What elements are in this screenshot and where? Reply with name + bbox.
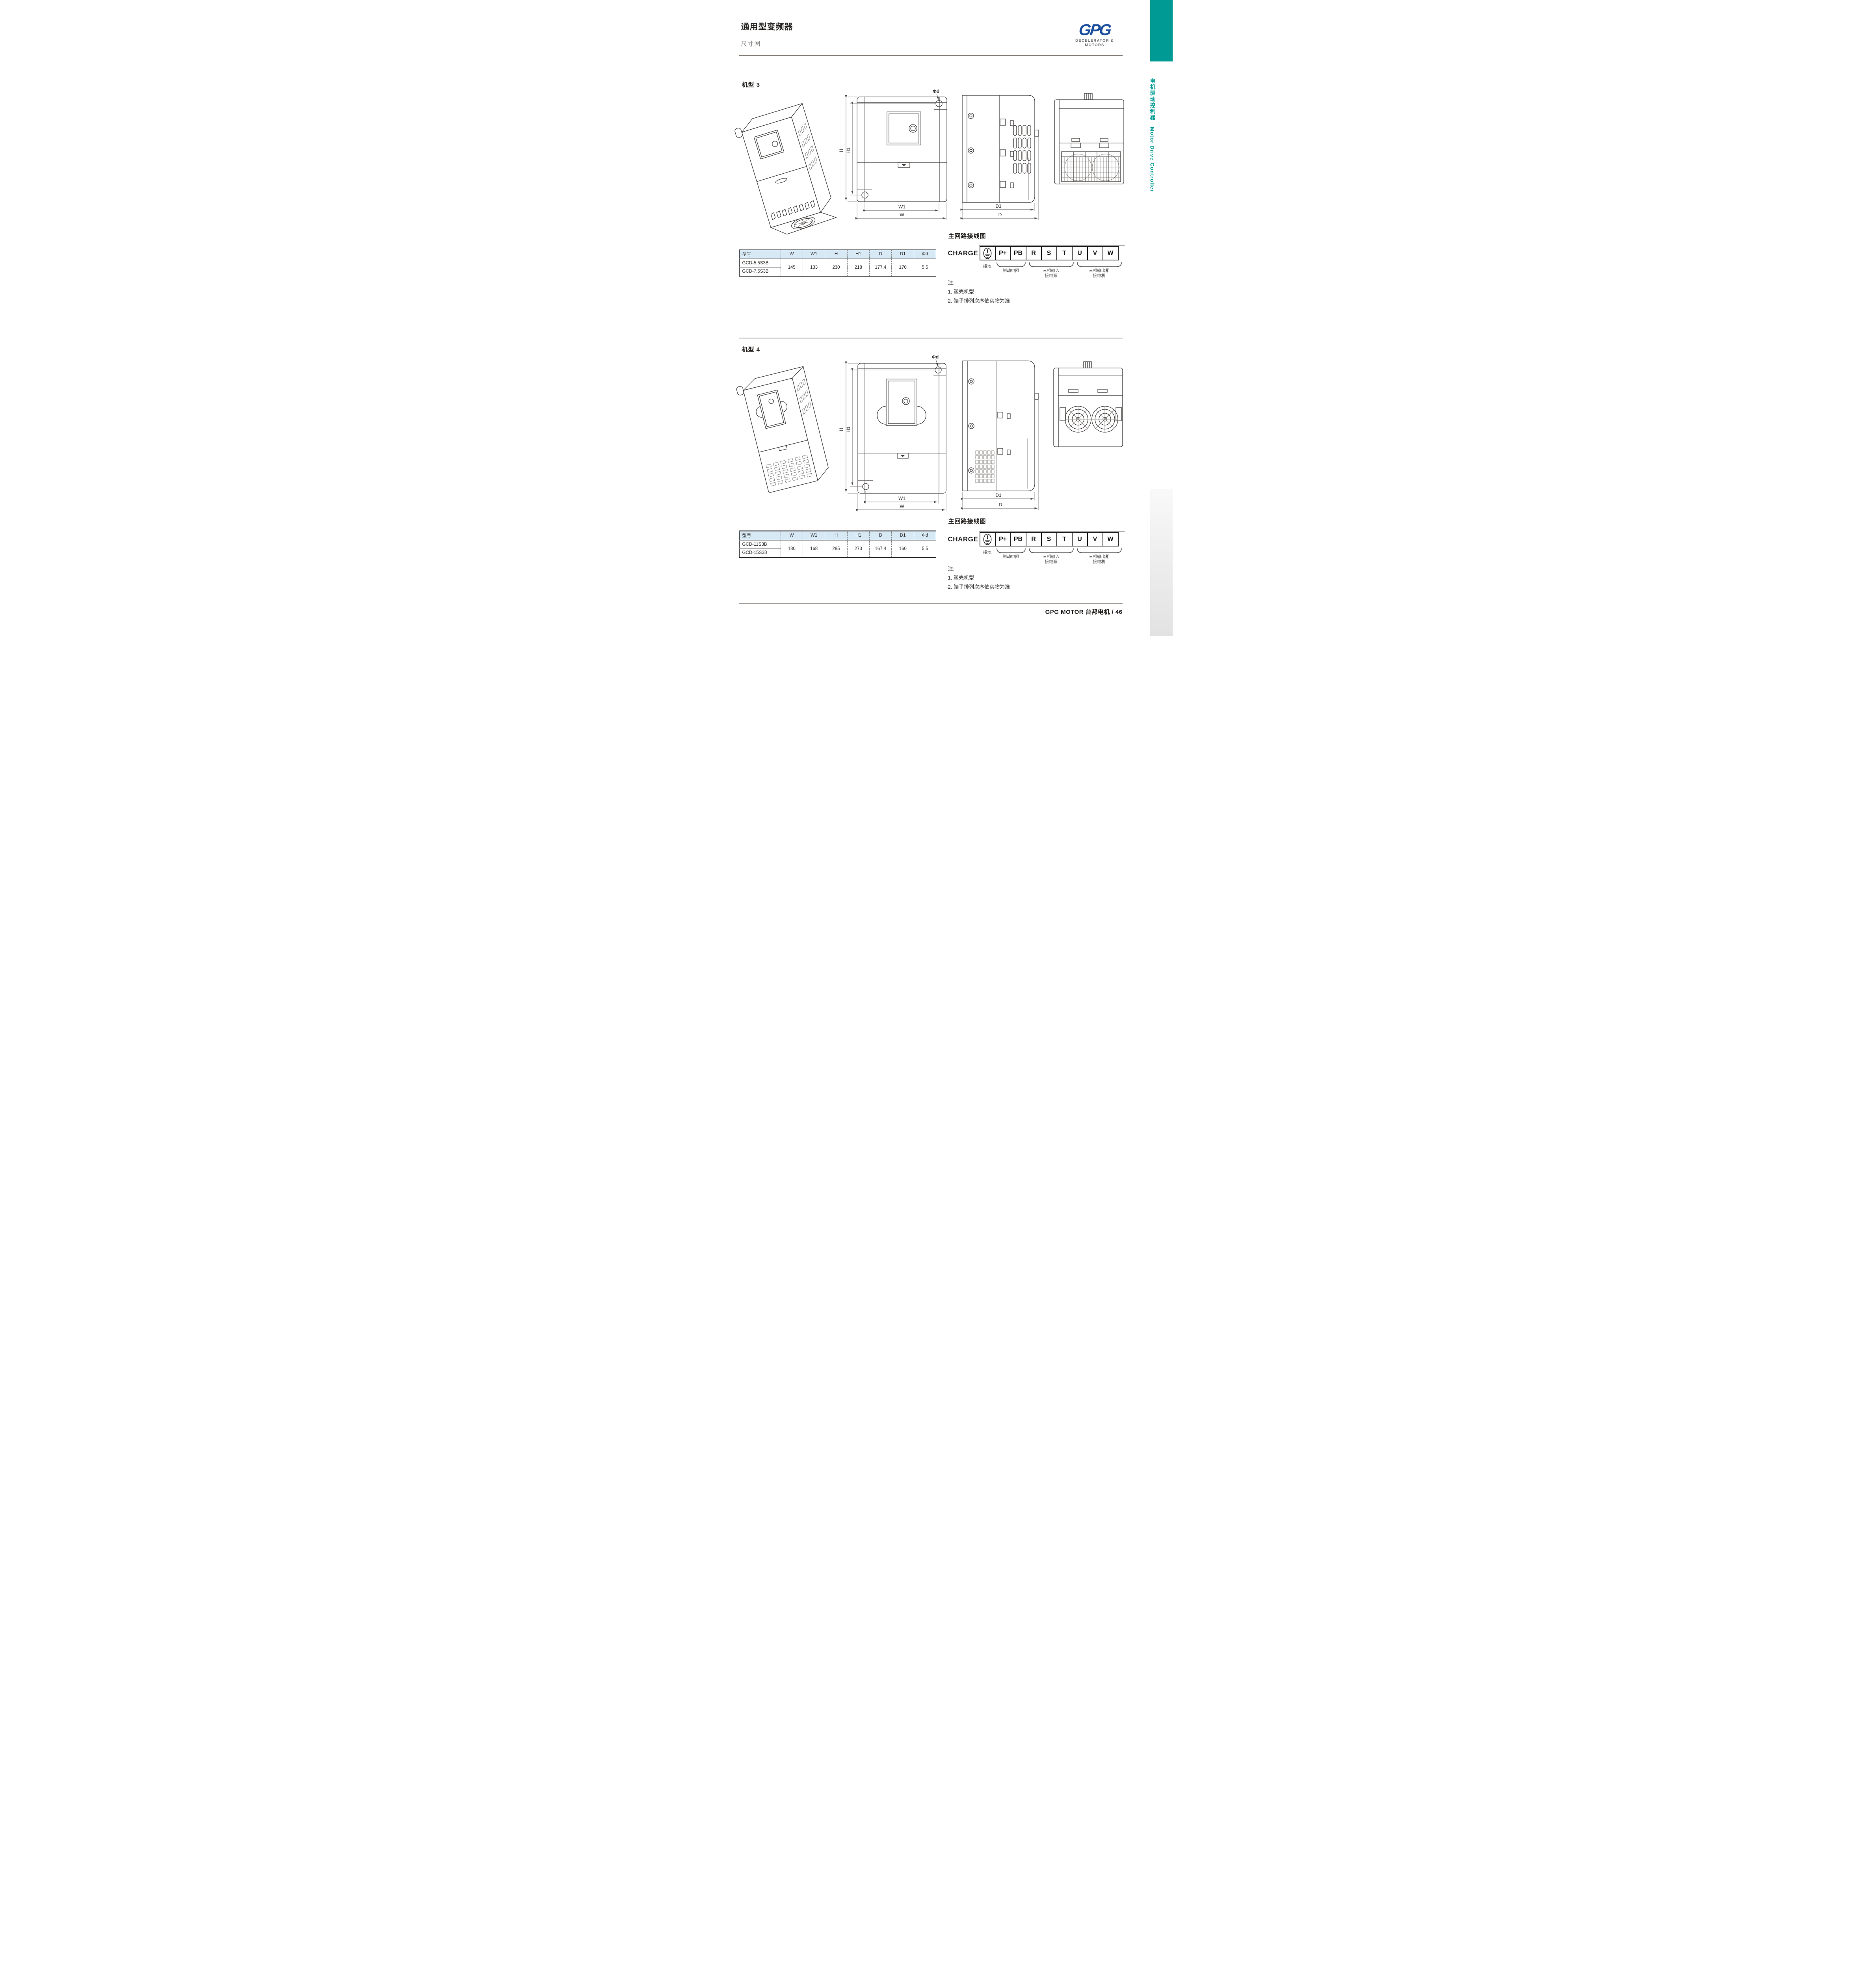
terminal-s: S bbox=[1041, 532, 1057, 546]
terminal-u: U bbox=[1072, 246, 1088, 260]
brace-icon bbox=[1028, 548, 1074, 554]
notes-block: 注: 1. 塑壳机型 2. 端子排列次序依实物为准 bbox=[948, 278, 1010, 305]
dim-label-h: H bbox=[839, 428, 844, 431]
ground-icon bbox=[983, 247, 992, 259]
footer-divider bbox=[739, 603, 1123, 604]
model-cell: GCD-15S3B bbox=[739, 549, 781, 558]
value-w1: 133 bbox=[803, 259, 825, 276]
page-title: 通用型变频器 bbox=[741, 20, 793, 32]
col-header-h: H bbox=[825, 250, 847, 259]
col-header-d1: D1 bbox=[892, 531, 914, 540]
value-d: 167.4 bbox=[870, 540, 892, 558]
output-callout: 三相输出相 接电机 bbox=[1083, 554, 1116, 565]
company-logo: GPG DECELERATOR & MOTORS bbox=[1066, 22, 1123, 47]
sidebar-accent-block bbox=[1150, 0, 1173, 61]
col-header-h1: H1 bbox=[847, 531, 869, 540]
terminal-strip: P+ PB R S T U V W bbox=[980, 246, 1119, 260]
terminal-p-plus: P+ bbox=[995, 532, 1011, 546]
ground-callout: 接地 bbox=[980, 264, 995, 269]
col-header-h: H bbox=[825, 531, 847, 540]
value-h1: 218 bbox=[847, 259, 869, 276]
col-header-model: 型号 bbox=[739, 250, 781, 259]
dim-label-h1: H1 bbox=[846, 147, 851, 154]
dim-label-w: W bbox=[900, 212, 904, 217]
value-phid: 5.5 bbox=[914, 540, 936, 558]
table-row: GCD-5.5S3B 145 133 230 218 177.4 170 5.5 bbox=[739, 259, 936, 268]
terminal-w: W bbox=[1103, 532, 1119, 546]
col-header-w: W bbox=[781, 531, 803, 540]
type3-rear-view-drawing bbox=[1050, 93, 1129, 189]
mounting-ear bbox=[736, 386, 744, 396]
input-callout: 三相输入 接电源 bbox=[1036, 554, 1067, 565]
wiring-heading: 主回路接线图 bbox=[948, 517, 986, 525]
dim-label-w: W bbox=[900, 504, 904, 509]
page-subtitle: 尺寸图 bbox=[741, 39, 761, 48]
terminal-strip: P+ PB R S T U V W bbox=[980, 532, 1119, 546]
col-header-w1: W1 bbox=[803, 531, 825, 540]
value-d1: 170 bbox=[892, 259, 914, 276]
connector bbox=[1035, 393, 1038, 400]
dim-label-h1: H1 bbox=[846, 426, 851, 433]
model-cell: GCD-7.5S3B bbox=[739, 268, 781, 276]
col-header-h1: H1 bbox=[847, 250, 869, 259]
brake-callout: 制动电阻 bbox=[995, 268, 1027, 273]
type3-side-view-drawing: D1 D bbox=[951, 87, 1046, 221]
input-callout: 三相输入 接电源 bbox=[1036, 268, 1067, 279]
model-cell: GCD-11S3B bbox=[739, 540, 781, 549]
note-item: 1. 塑壳机型 bbox=[948, 287, 1010, 296]
type3-isometric-drawing bbox=[738, 91, 835, 243]
col-header-d1: D1 bbox=[892, 250, 914, 259]
dim-label-phid: Φd bbox=[932, 354, 939, 360]
terminal-p-plus: P+ bbox=[995, 246, 1011, 260]
terminal-v: V bbox=[1087, 532, 1103, 546]
notes-title: 注: bbox=[948, 564, 1010, 573]
terminal-t: T bbox=[1056, 532, 1073, 546]
dim-label-w1: W1 bbox=[898, 496, 905, 501]
notes-title: 注: bbox=[948, 278, 1010, 287]
terminal-ground bbox=[980, 532, 996, 546]
keypad bbox=[887, 112, 921, 145]
dim-label-d: D bbox=[998, 212, 1002, 217]
terminal-t: T bbox=[1056, 246, 1073, 260]
type3-front-view-drawing: H H1 Φd W1 W bbox=[840, 87, 954, 221]
table-header-row: 型号 W W1 H H1 D D1 Φd bbox=[739, 250, 936, 259]
brace-icon bbox=[1077, 548, 1122, 554]
sidebar-text-cn: 电机驱动控制器 bbox=[1149, 78, 1155, 121]
sidebar-text-en: Motor Drive Controller bbox=[1149, 127, 1155, 192]
section-divider bbox=[739, 338, 1123, 338]
col-header-d: D bbox=[870, 531, 892, 540]
header-divider bbox=[739, 55, 1123, 56]
sidebar-gray-strip bbox=[1150, 489, 1173, 636]
value-d: 177.4 bbox=[870, 259, 892, 276]
section-1-label: 机型 3 bbox=[742, 80, 760, 89]
value-h: 285 bbox=[825, 540, 847, 558]
logo-tagline: DECELERATOR & MOTORS bbox=[1066, 39, 1123, 47]
brace-icon bbox=[1028, 262, 1074, 268]
value-h: 230 bbox=[825, 259, 847, 276]
mounting-ear bbox=[734, 127, 743, 138]
type4-front-view-drawing: H H1 Φd W1 W bbox=[840, 354, 954, 511]
charge-label: CHARGE bbox=[948, 535, 978, 543]
terminal-r: R bbox=[1026, 246, 1042, 260]
value-w: 180 bbox=[781, 540, 803, 558]
value-d1: 160 bbox=[892, 540, 914, 558]
catalog-page: 通用型变频器 尺寸图 GPG DECELERATOR & MOTORS 电机驱动… bbox=[704, 0, 1173, 636]
dim-label-h: H bbox=[839, 149, 844, 152]
dim-label-w1: W1 bbox=[898, 204, 905, 210]
terminal-u: U bbox=[1072, 532, 1088, 546]
gpg-logo-icon: GPG bbox=[1078, 22, 1111, 38]
dim-label-phid: Φd bbox=[933, 89, 939, 94]
col-header-phid: Φd bbox=[914, 531, 936, 540]
brace-icon bbox=[1077, 262, 1122, 268]
ground-icon bbox=[983, 533, 992, 545]
terminal-pb: PB bbox=[1010, 246, 1026, 260]
col-header-w1: W1 bbox=[803, 250, 825, 259]
note-item: 2. 端子排列次序依实物为准 bbox=[948, 296, 1010, 305]
dimension-table-type4: 型号 W W1 H H1 D D1 Φd GCD-11S3B 180 168 2… bbox=[739, 530, 937, 558]
terminal-ground bbox=[980, 246, 996, 260]
notes-block: 注: 1. 塑壳机型 2. 端子排列次序依实物为准 bbox=[948, 564, 1010, 591]
note-item: 2. 端子排列次序依实物为准 bbox=[948, 582, 1010, 591]
col-header-d: D bbox=[870, 250, 892, 259]
footer-page-info: GPG MOTOR 台邦电机 / 46 bbox=[1045, 608, 1123, 616]
table-header-row: 型号 W W1 H H1 D D1 Φd bbox=[739, 531, 936, 540]
dim-label-d: D bbox=[998, 502, 1002, 507]
value-h1: 273 bbox=[847, 540, 869, 558]
col-header-model: 型号 bbox=[739, 531, 781, 540]
table-row: GCD-11S3B 180 168 285 273 167.4 160 5.5 bbox=[739, 540, 936, 549]
dim-label-d1: D1 bbox=[995, 492, 1002, 498]
type4-isometric-drawing bbox=[738, 355, 835, 517]
col-header-phid: Φd bbox=[914, 250, 936, 259]
value-w1: 168 bbox=[803, 540, 825, 558]
dimension-table-type3: 型号 W W1 H H1 D D1 Φd GCD-5.5S3B 145 133 … bbox=[739, 249, 937, 277]
brace-icon bbox=[996, 548, 1026, 554]
terminal-v: V bbox=[1087, 246, 1103, 260]
output-callout: 三相输出相 接电机 bbox=[1083, 268, 1116, 279]
note-item: 1. 塑壳机型 bbox=[948, 573, 1010, 582]
sidebar-vertical-text: 电机驱动控制器 Motor Drive Controller bbox=[1148, 78, 1156, 330]
value-phid: 5.5 bbox=[914, 259, 936, 276]
type4-side-view-drawing: D1 D bbox=[953, 354, 1045, 511]
connector bbox=[1035, 130, 1039, 136]
value-w: 145 bbox=[781, 259, 803, 276]
charge-label: CHARGE bbox=[948, 249, 978, 257]
terminal-r: R bbox=[1026, 532, 1042, 546]
terminal-pb: PB bbox=[1010, 532, 1026, 546]
terminal-w: W bbox=[1103, 246, 1119, 260]
brake-callout: 制动电阻 bbox=[995, 554, 1027, 559]
terminal-s: S bbox=[1041, 246, 1057, 260]
dim-label-d1: D1 bbox=[995, 203, 1002, 209]
model-cell: GCD-5.5S3B bbox=[739, 259, 781, 268]
brace-icon bbox=[996, 262, 1026, 268]
type4-rear-view-drawing bbox=[1050, 361, 1127, 452]
fan-grille bbox=[1065, 406, 1091, 432]
ground-callout: 接地 bbox=[980, 550, 995, 555]
wiring-heading: 主回路接线图 bbox=[948, 232, 986, 240]
col-header-w: W bbox=[781, 250, 803, 259]
fan-grille bbox=[1092, 406, 1118, 432]
section-2-label: 机型 4 bbox=[742, 345, 760, 353]
